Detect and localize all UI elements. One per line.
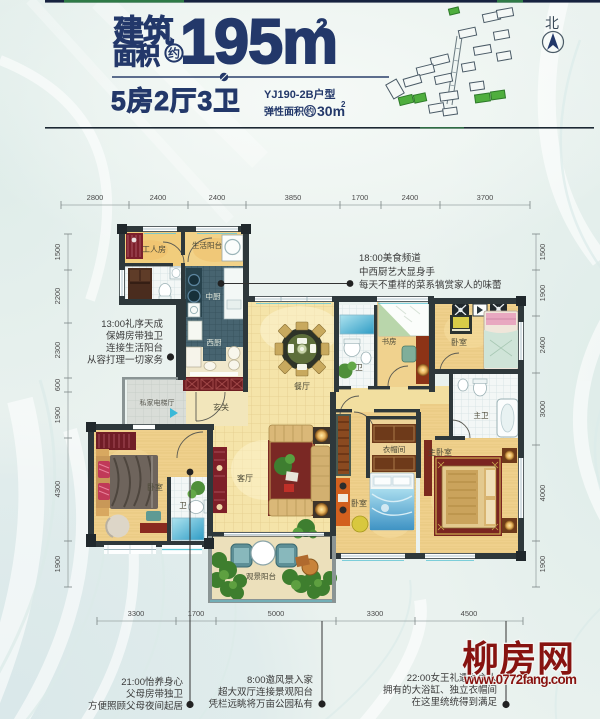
svg-text:2200: 2200 xyxy=(53,288,62,305)
svg-text:8:00邀风景入家: 8:00邀风景入家 xyxy=(247,674,313,686)
svg-text:超大双厅连接景观阳台: 超大双厅连接景观阳台 xyxy=(218,686,313,698)
svg-text:工人房: 工人房 xyxy=(142,244,166,254)
svg-text:面积: 面积 xyxy=(113,43,160,70)
svg-text:客厅: 客厅 xyxy=(237,473,253,483)
svg-text:卧室: 卧室 xyxy=(147,482,163,492)
svg-text:4000: 4000 xyxy=(538,485,547,502)
svg-text:13:00礼序天成: 13:00礼序天成 xyxy=(101,318,163,330)
svg-text:2400: 2400 xyxy=(538,337,547,354)
svg-text:主卧室: 主卧室 xyxy=(428,447,452,457)
svg-text:生活阳台: 生活阳台 xyxy=(192,240,222,250)
svg-text:连接生活阳台: 连接生活阳台 xyxy=(106,342,163,354)
svg-text:卫: 卫 xyxy=(355,363,363,372)
svg-text:18:00美食频道: 18:00美食频道 xyxy=(359,252,421,264)
svg-text:195m: 195m xyxy=(180,7,337,77)
svg-text:1500: 1500 xyxy=(53,244,62,261)
svg-text:凭栏远眺将万亩公园私有: 凭栏远眺将万亩公园私有 xyxy=(208,698,313,710)
svg-text:1700: 1700 xyxy=(352,193,369,202)
svg-text:主卫: 主卫 xyxy=(474,410,489,420)
svg-text:私家电梯厅: 私家电梯厅 xyxy=(140,398,175,407)
svg-text:约: 约 xyxy=(168,46,180,61)
svg-text:2400: 2400 xyxy=(402,193,419,202)
svg-text:1900: 1900 xyxy=(53,407,62,424)
svg-text:卧室: 卧室 xyxy=(451,337,467,347)
svg-text:2300: 2300 xyxy=(53,342,62,359)
svg-text:www.0772fang.com: www.0772fang.com xyxy=(463,672,577,687)
svg-text:3300: 3300 xyxy=(367,609,384,618)
svg-text:21:00怡养身心: 21:00怡养身心 xyxy=(121,676,183,688)
svg-text:每天不重样的菜系犒赏家人的味蕾: 每天不重样的菜系犒赏家人的味蕾 xyxy=(359,279,502,291)
svg-text:2400: 2400 xyxy=(209,193,226,202)
svg-text:父母房带独卫: 父母房带独卫 xyxy=(126,688,184,700)
svg-text:2: 2 xyxy=(316,15,328,38)
svg-text:3700: 3700 xyxy=(477,193,494,202)
svg-text:从容打理一切家务: 从容打理一切家务 xyxy=(87,354,164,366)
svg-text:西厨: 西厨 xyxy=(207,338,222,347)
svg-text:中西厨艺大显身手: 中西厨艺大显身手 xyxy=(359,266,436,278)
svg-text:卫: 卫 xyxy=(179,501,187,510)
svg-text:1500: 1500 xyxy=(538,244,547,261)
svg-text:2400: 2400 xyxy=(150,193,167,202)
svg-text:3000: 3000 xyxy=(538,401,547,418)
svg-text:书房: 书房 xyxy=(382,336,397,346)
svg-text:2800: 2800 xyxy=(87,193,104,202)
svg-text:1900: 1900 xyxy=(538,556,547,573)
svg-text:5房2厅3卫: 5房2厅3卫 xyxy=(111,86,241,116)
svg-text:北: 北 xyxy=(545,15,559,31)
svg-text:5000: 5000 xyxy=(268,609,285,618)
svg-text:餐厅: 餐厅 xyxy=(294,382,310,391)
svg-text:YJ190-2B户型: YJ190-2B户型 xyxy=(264,87,336,101)
svg-text:中厨: 中厨 xyxy=(206,291,221,301)
svg-text:3850: 3850 xyxy=(285,193,302,202)
svg-text:观景阳台: 观景阳台 xyxy=(246,571,276,581)
svg-text:玄关: 玄关 xyxy=(213,402,229,412)
svg-text:2: 2 xyxy=(341,100,346,109)
svg-text:衣帽间: 衣帽间 xyxy=(383,444,406,454)
svg-text:600: 600 xyxy=(53,379,62,392)
svg-text:4300: 4300 xyxy=(53,481,62,498)
svg-text:4500: 4500 xyxy=(461,609,478,618)
svg-text:约: 约 xyxy=(306,106,314,116)
svg-text:1900: 1900 xyxy=(53,556,62,573)
svg-text:弹性面积: 弹性面积 xyxy=(264,105,304,118)
svg-text:卧室: 卧室 xyxy=(351,498,367,508)
svg-text:在这里统统得到满足: 在这里统统得到满足 xyxy=(411,696,497,708)
svg-text:方便照顾父母夜间起居: 方便照顾父母夜间起居 xyxy=(88,700,183,712)
svg-text:保姆房带独卫: 保姆房带独卫 xyxy=(106,330,164,342)
svg-text:1900: 1900 xyxy=(538,285,547,302)
svg-text:3300: 3300 xyxy=(128,609,145,618)
